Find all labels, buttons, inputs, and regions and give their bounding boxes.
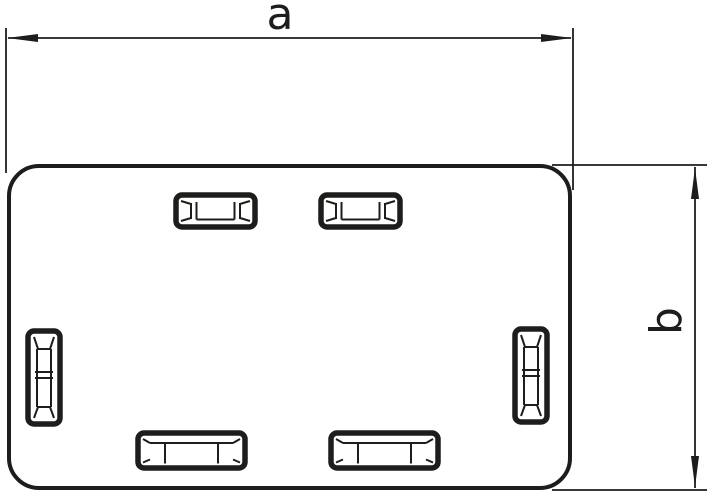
dim-a-arrowhead-left-icon bbox=[7, 34, 38, 42]
technical-drawing-canvas: a b bbox=[0, 0, 708, 496]
latch-slot-bottom-right bbox=[331, 433, 438, 468]
latch-slot-right bbox=[515, 329, 547, 422]
latch-slot-left bbox=[28, 331, 60, 424]
part-body-outline bbox=[9, 166, 570, 488]
end-piece-dimension-drawing: a b bbox=[0, 0, 708, 496]
latch-slot-top-right bbox=[321, 195, 400, 227]
latch-slot-top-left bbox=[176, 195, 255, 227]
dim-b-arrowhead-top-icon bbox=[691, 168, 699, 199]
dim-a-arrowhead-right-icon bbox=[541, 34, 572, 42]
latch-slot-bottom-left bbox=[138, 433, 245, 468]
dim-b-arrowhead-bottom-icon bbox=[691, 456, 699, 487]
dim-a-label: a bbox=[267, 0, 294, 40]
dim-b-label: b bbox=[641, 307, 692, 335]
